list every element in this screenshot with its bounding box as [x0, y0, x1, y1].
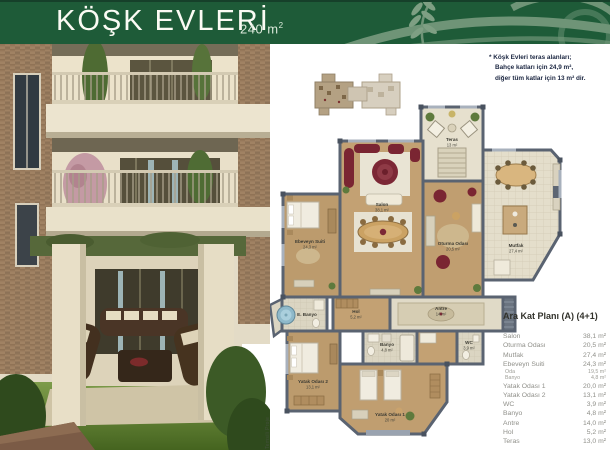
legend-row: Salon38,1 m²: [503, 332, 606, 341]
legend-row: Teras13,0 m²: [503, 437, 606, 446]
svg-text:Hol: Hol: [352, 309, 359, 314]
brochure-page: KÖŞK EVLERİ 240 m2: [0, 0, 610, 450]
legend-row: Mutfak27,4 m²: [503, 351, 606, 360]
room-oturma: Oturma Odası 20,5 m²: [423, 181, 483, 297]
svg-text:38,1 m²: 38,1 m²: [375, 208, 390, 213]
plan-title: Ara Kat Planı (A) (4+1): [503, 311, 606, 321]
building-photo: [0, 44, 270, 450]
room-salon: Salon 38,1 m²: [340, 141, 423, 297]
legend-row: Antre14,0 m²: [503, 419, 606, 428]
svg-text:3,9 m²: 3,9 m²: [463, 346, 475, 351]
key-plan: [315, 74, 400, 115]
svg-text:4,8 m²: 4,8 m²: [381, 348, 393, 353]
hall-closet: [417, 331, 457, 364]
plan-panel: * Köşk Evleri teras alanları; Bahçe katl…: [270, 44, 610, 450]
svg-text:13,1 m²: 13,1 m²: [306, 385, 321, 390]
svg-text:14 m²: 14 m²: [436, 312, 447, 317]
svg-text:Salon: Salon: [376, 202, 389, 207]
svg-text:5,2 m²: 5,2 m²: [350, 315, 362, 320]
svg-text:E. Banyo: E. Banyo: [297, 312, 317, 317]
legend-row: Yatak Odası 213,1 m²: [503, 391, 606, 400]
room-list: Ara Kat Planı (A) (4+1) Salon38,1 m² Otu…: [503, 311, 606, 447]
legend-row: Hol5,2 m²: [503, 428, 606, 437]
svg-text:Ebeveyn Suiti: Ebeveyn Suiti: [295, 239, 325, 244]
svg-text:Yatak Odası 1: Yatak Odası 1: [375, 412, 405, 417]
svg-text:20,5 m²: 20,5 m²: [446, 247, 461, 252]
brick-wall-right: [238, 44, 270, 324]
svg-text:Antre: Antre: [435, 306, 447, 311]
room-hol: Hol 5,2 m²: [333, 297, 390, 331]
legend-row: WC3,9 m²: [503, 400, 606, 409]
svg-text:Banyo: Banyo: [380, 342, 394, 347]
room-banyo: Banyo 4,8 m²: [363, 331, 417, 364]
balcony-slab: [46, 104, 270, 134]
legend-row: Banyo4,8 m²: [503, 409, 606, 418]
building-rendering: [0, 44, 270, 450]
balcony-railing: [52, 173, 238, 203]
room-antre: Antre 14 m²: [390, 297, 515, 331]
balcony-slab: [46, 207, 270, 233]
unit-size-label: 240 m2: [240, 21, 284, 36]
room-mutfak: Mutfak 27,4 m²: [483, 150, 560, 280]
svg-text:Oturma Odası: Oturma Odası: [438, 241, 468, 246]
balcony-railing: [52, 75, 238, 100]
room-ebeveyn: Ebeveyn Suiti 24,3 m²: [283, 194, 340, 297]
room-yatak2: Yatak Odası 2 13,1 m²: [287, 331, 340, 411]
legend-row: Oturma Odası20,5 m²: [503, 341, 606, 350]
svg-text:WC: WC: [465, 340, 473, 345]
page-title: KÖŞK EVLERİ: [56, 5, 270, 38]
room-teras: Teras 13 m²: [421, 107, 483, 181]
room-yatak1: Yatak Odası 1 20 m²: [340, 364, 447, 435]
svg-text:20 m²: 20 m²: [385, 418, 396, 423]
svg-text:Mutfak: Mutfak: [509, 243, 524, 248]
svg-text:Teras: Teras: [446, 137, 458, 142]
room-wc: WC 3,9 m²: [457, 331, 483, 364]
svg-text:24,3 m²: 24,3 m²: [303, 245, 318, 250]
window: [16, 204, 38, 266]
svg-text:Yatak Odası 2: Yatak Odası 2: [298, 379, 328, 384]
header-banner: KÖŞK EVLERİ 240 m2: [0, 0, 610, 44]
legend-row: Yatak Odası 120,0 m²: [503, 382, 606, 391]
svg-text:27,4 m²: 27,4 m²: [509, 249, 524, 254]
svg-text:13 m²: 13 m²: [447, 143, 458, 148]
legend-row: Ebeveyn Suiti24,3 m²: [503, 360, 606, 369]
